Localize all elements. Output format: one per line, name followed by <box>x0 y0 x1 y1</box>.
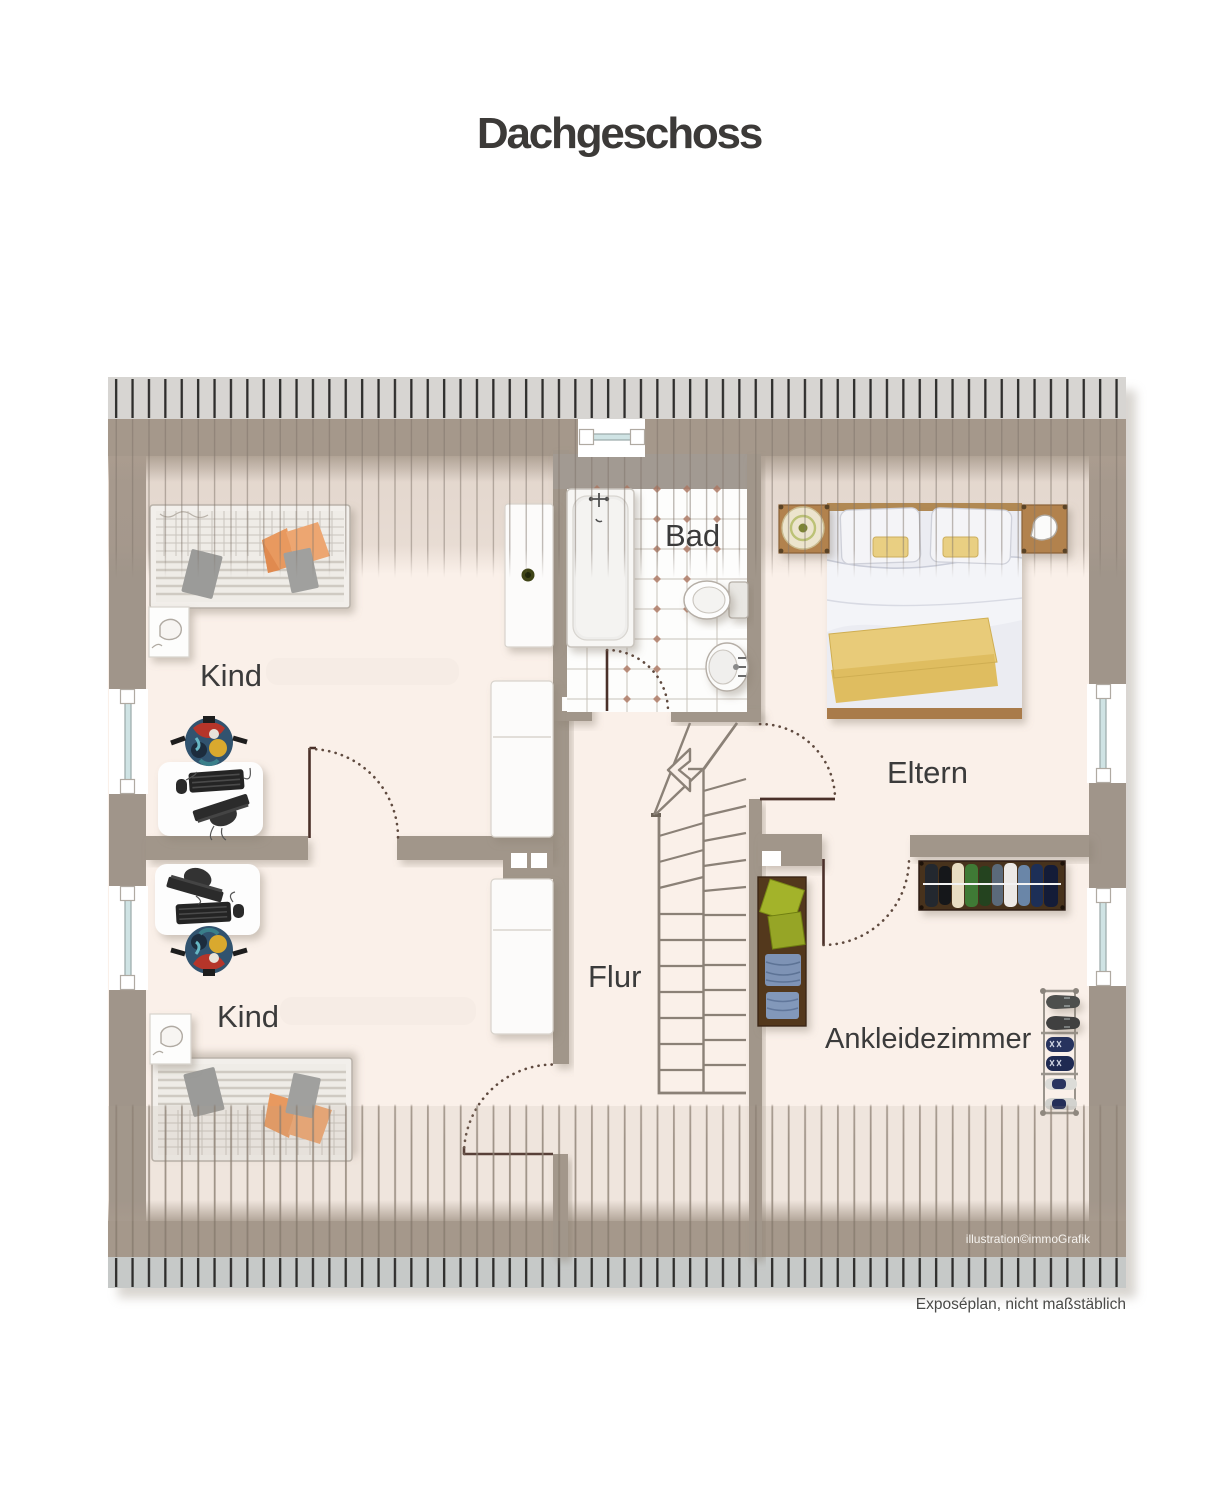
svg-text:Eltern: Eltern <box>887 755 968 790</box>
svg-text:Bad: Bad <box>665 518 720 553</box>
svg-text:Kind: Kind <box>200 658 262 693</box>
svg-text:illustration©immoGrafik: illustration©immoGrafik <box>966 1232 1091 1246</box>
svg-text:Kind: Kind <box>217 999 279 1034</box>
svg-text:Ankleidezimmer: Ankleidezimmer <box>825 1023 1032 1055</box>
svg-text:Flur: Flur <box>588 959 641 994</box>
svg-text:Dachgeschoss: Dachgeschoss <box>477 109 762 158</box>
svg-text:Exposéplan, nicht maßstäblich: Exposéplan, nicht maßstäblich <box>916 1296 1126 1313</box>
